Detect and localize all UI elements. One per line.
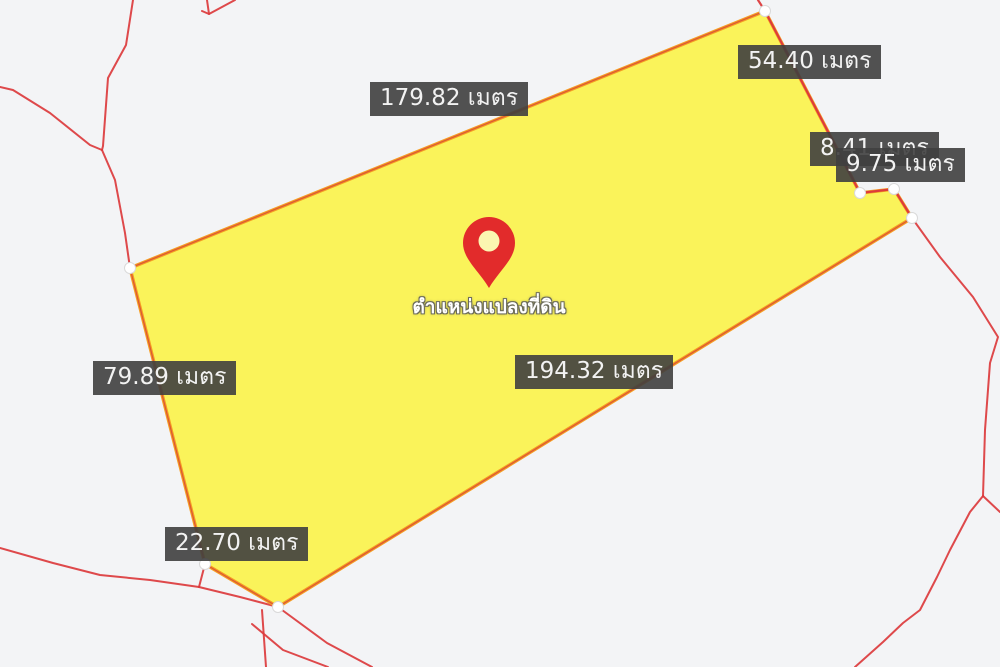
boundary-line bbox=[855, 496, 983, 667]
boundary-line bbox=[912, 218, 998, 496]
boundary-line bbox=[0, 87, 102, 150]
vertex-dot bbox=[200, 559, 211, 570]
boundary-line bbox=[0, 548, 199, 587]
boundary-line bbox=[202, 0, 209, 14]
boundary-line bbox=[209, 0, 235, 14]
vertex-dot bbox=[855, 188, 866, 199]
vertex-dot bbox=[889, 184, 900, 195]
vertex-dot bbox=[125, 263, 136, 274]
boundary-line bbox=[278, 607, 372, 667]
vertex-dot bbox=[760, 6, 771, 17]
boundary-line bbox=[983, 496, 1000, 512]
vertex-dot bbox=[273, 602, 284, 613]
boundary-line bbox=[102, 0, 133, 150]
pin-caption: ตำแหน่งแปลงที่ดิน bbox=[412, 292, 565, 322]
map-viewport[interactable]: 179.82 เมตร54.40 เมตร8.41 เมตร9.75 เมตร7… bbox=[0, 0, 1000, 667]
vertex-dot bbox=[907, 213, 918, 224]
map-canvas[interactable] bbox=[0, 0, 1000, 667]
boundary-line bbox=[102, 150, 130, 268]
boundary-line bbox=[262, 610, 266, 667]
location-pin-hole bbox=[479, 231, 500, 252]
